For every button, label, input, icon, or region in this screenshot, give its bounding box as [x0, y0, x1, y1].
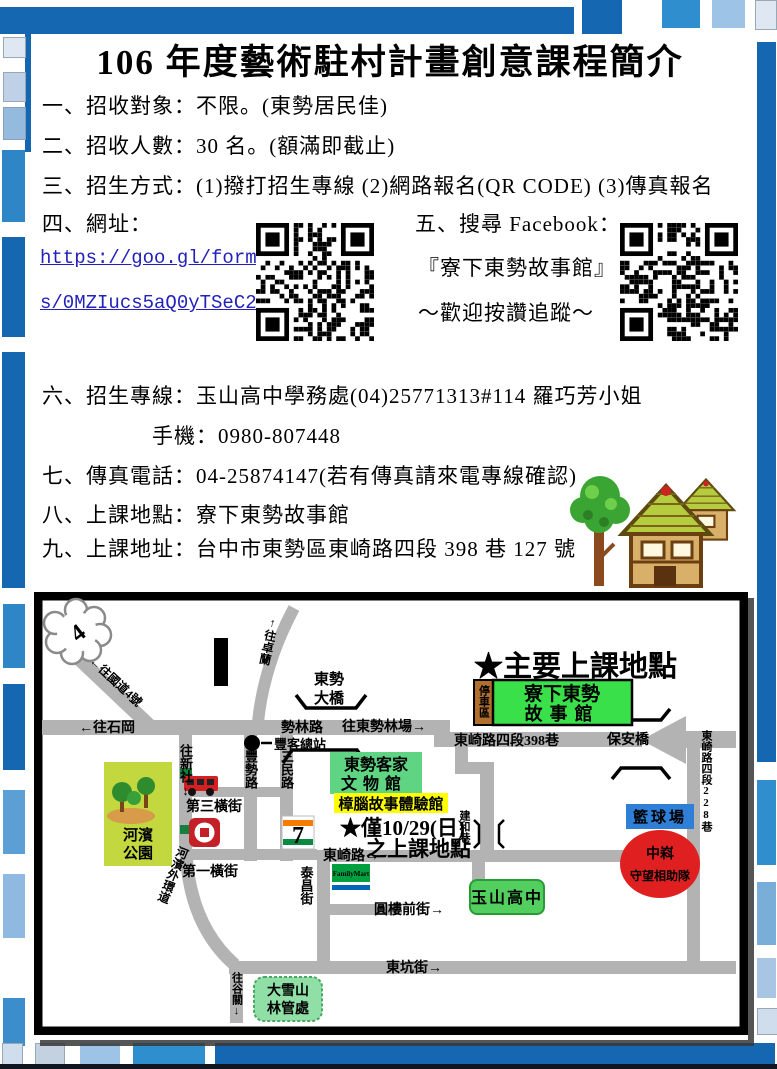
- website-label: 四、網址：: [42, 208, 152, 238]
- address-line: 九、上課地址：台中市東勢區東崎路四段 398 巷 127 號: [42, 533, 576, 563]
- parking-box: 停車區: [474, 680, 493, 725]
- bus-terminal-dot: [244, 735, 260, 751]
- intro-line-3: 三、招生方式：(1)撥打招生專線 (2)網路報名(QR CODE) (3)傳真報…: [42, 170, 714, 200]
- sanmin-road-label: 三民路: [279, 750, 294, 789]
- to-xinshe-label: 往新社↓: [178, 743, 194, 798]
- tree-icon: [570, 476, 630, 586]
- dongkeng-street-label: 東坑街→: [386, 959, 442, 976]
- top-square-1: [582, 0, 622, 34]
- venue-line: 八、上課地點：寮下東勢故事館: [42, 499, 350, 529]
- camphor-museum-box: 樟腦故事體驗館: [334, 793, 448, 813]
- facebook-label: 五、搜尋 Facebook：: [415, 208, 621, 238]
- signup-url-line-1[interactable]: https://goo.gl/form: [40, 247, 257, 269]
- left-bar-2: [2, 237, 25, 337]
- bottom-bar: [215, 1043, 775, 1064]
- top-square-3: [712, 0, 745, 28]
- familymart-icon: FamilyMart: [332, 864, 370, 890]
- to-dongshi-forest-label: 往東勢林場→: [342, 718, 426, 735]
- left-square-1: [3, 37, 26, 58]
- bottom-square-2: [35, 1043, 65, 1066]
- taichang-street-label: 泰昌街: [299, 865, 315, 906]
- fengshi-road-label: 豐勢路: [243, 749, 258, 789]
- intro-line-2: 二、招收人數：30 名。(額滿即截止): [42, 130, 395, 160]
- seven-eleven-icon: 7: [282, 816, 314, 849]
- to-shigang-label: ←往石岡: [79, 719, 135, 736]
- right-bar-3: [757, 882, 776, 945]
- signup-qr-code: [256, 223, 374, 341]
- left-bar-8: [3, 998, 25, 1046]
- mobile-line: 手機：0980-807448: [152, 420, 341, 450]
- road-first-cross: [185, 849, 317, 860]
- basketball-court-label: 籃球場: [633, 808, 687, 826]
- map: 4 河濱 公園: [34, 592, 748, 1040]
- lane228-label: 東崎路四段228巷: [700, 729, 714, 832]
- parking-label: 停車區: [478, 684, 491, 718]
- hotline-line: 六、招生專線：玉山高中學務處(04)25771313#114 羅巧芳小姐: [42, 380, 642, 410]
- fax-line: 七、傳真電話：04-25874147(若有傳真請來電專線確認): [42, 460, 577, 490]
- left-bar-6: [3, 790, 25, 854]
- top-square-2: [662, 0, 700, 28]
- left-bar-4: [3, 604, 25, 668]
- daxueshan-label-1: 大雪山: [267, 982, 309, 999]
- story-house-label-2: 故事館: [525, 703, 600, 724]
- top-square-4: [755, 0, 777, 30]
- dongshi-bridge-label-2: 大橋: [314, 689, 345, 707]
- hakka-museum-box: 東勢客家 文物館: [330, 752, 422, 794]
- yushan-high-box: 玉山高中: [470, 880, 544, 914]
- camphor-museum-label: 樟腦故事體驗館: [338, 795, 443, 813]
- riverside-park-label-1: 河濱: [123, 826, 153, 844]
- shilin-road-label: 勢林路: [281, 719, 324, 736]
- road-taichang: [317, 850, 330, 974]
- left-bar-3: [2, 352, 25, 588]
- left-bar-5: [3, 684, 25, 770]
- watch-team-ellipse: 中嵙 守望相助隊: [620, 830, 700, 898]
- watch-team-label-1: 中嵙: [646, 845, 674, 862]
- bottom-square-1: [2, 1043, 23, 1066]
- intro-line-1: 一、招收對象：不限。(東勢居民佳): [42, 90, 388, 120]
- black-landmark: [214, 638, 228, 686]
- seven-eleven-7: 7: [292, 823, 304, 849]
- right-bar-4: [757, 958, 776, 998]
- first-cross-street-label: 第一橫街: [182, 863, 238, 880]
- dongshi-bridge-label-1: 東勢: [314, 670, 344, 688]
- road-south: [229, 961, 736, 974]
- daxueshan-label-2: 林管處: [267, 1000, 310, 1017]
- story-house-label-1: 寮下東勢: [523, 682, 600, 705]
- post-office-icon: [189, 818, 220, 847]
- to-guguan-label: 往谷關↓: [231, 971, 244, 1017]
- baoan-bridge-label: 保安橋: [606, 731, 650, 748]
- page-title: 106 年度藝術駐村計畫創意課程簡介: [40, 34, 740, 85]
- riverside-park-box: 河濱 公園: [104, 762, 172, 866]
- dongqi-road-label: 東崎路→: [323, 847, 379, 864]
- basketball-court-box: 籃球場: [626, 804, 694, 829]
- left-square-2: [3, 72, 26, 102]
- main-location-title: ★主要上課地點: [474, 649, 677, 683]
- familymart-label: FamilyMart: [333, 870, 370, 878]
- hakka-museum-label-2: 文物館: [341, 774, 407, 793]
- right-bar-5: [757, 1008, 777, 1035]
- bottom-edge-line: [0, 1064, 777, 1069]
- story-house-box: 寮下東勢 故事館: [493, 680, 632, 725]
- left-bar-7: [3, 874, 25, 938]
- facebook-slogan: ～歡迎按讚追蹤～: [418, 297, 594, 327]
- flyer-page: 106 年度藝術駐村計畫創意課程簡介 一、招收對象：不限。(東勢居民佳) 二、招…: [0, 0, 777, 1069]
- hakka-museum-label-1: 東勢客家: [344, 755, 409, 774]
- lane398-label: 東崎路四段398巷: [454, 732, 560, 749]
- jianhe-lane-label: 建和巷: [458, 809, 472, 843]
- oct29-note-line-2: 之上課地點: [366, 837, 471, 861]
- watch-team-label-2: 守望相助隊: [630, 868, 691, 883]
- yuanlou-street-label: 圓樓前街→: [374, 901, 444, 918]
- road-jianhe: [480, 762, 494, 856]
- daxueshan-box: 大雪山 林管處: [254, 977, 322, 1021]
- facebook-page-name: 『寮下東勢故事館』: [418, 252, 616, 282]
- left-square-3: [3, 107, 26, 140]
- top-bar: [0, 7, 574, 34]
- signup-url-line-2[interactable]: s/0MZIucs5aQ0yTSeC2: [40, 292, 257, 314]
- third-cross-street-label: 第三橫街: [186, 798, 242, 815]
- right-bar-1: [757, 42, 776, 762]
- bottom-square-3: [80, 1043, 120, 1064]
- bottom-square-4: [133, 1043, 205, 1064]
- riverside-park-label-2: 公園: [123, 845, 153, 862]
- right-bar-2: [757, 780, 776, 865]
- facebook-qr-code: [620, 223, 738, 341]
- yushan-high-label: 玉山高中: [471, 888, 543, 907]
- left-bar-1: [2, 150, 25, 222]
- house-clipart: [570, 460, 755, 593]
